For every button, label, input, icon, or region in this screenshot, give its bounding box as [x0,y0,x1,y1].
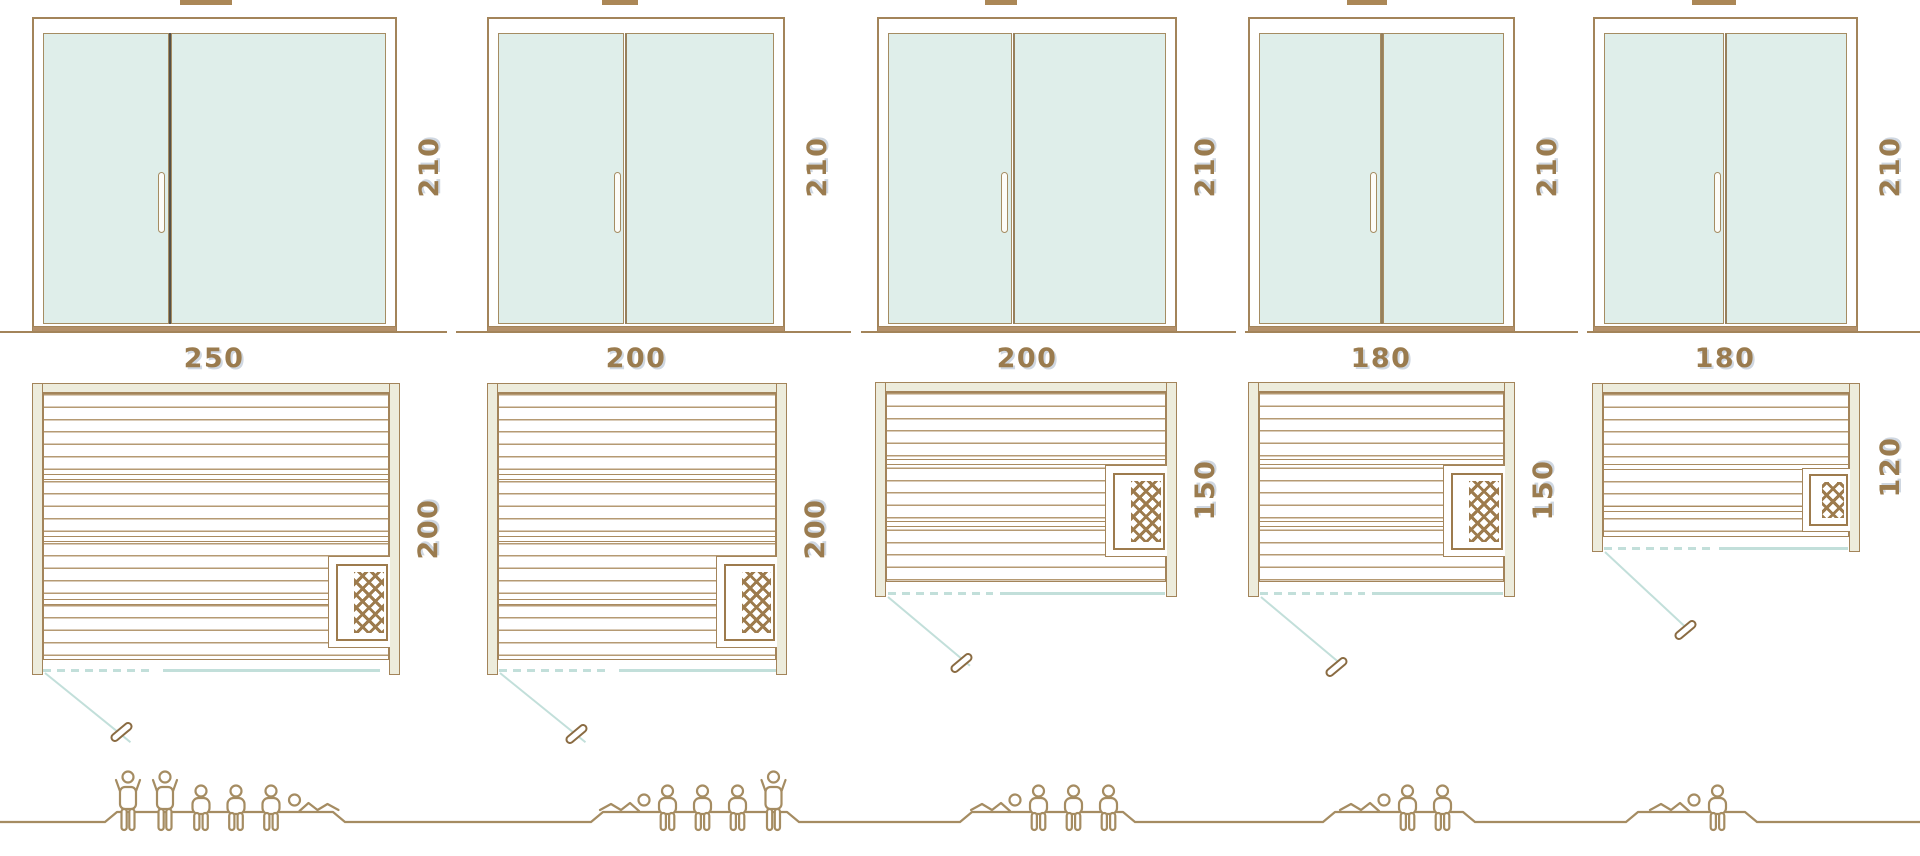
plan-right-post [1849,383,1860,552]
roof-vent-bar [180,0,232,5]
plan-top-wall [32,383,400,393]
door-elevation [32,17,397,332]
glass-panel-left [1259,33,1381,324]
plan-right-post [1504,382,1515,597]
capacity-group [1650,786,1726,831]
plan-left-post [1592,383,1603,552]
plan-interior-planks [1603,393,1849,537]
width-dimension-label: 180 [1321,344,1441,374]
ground-profile-line [0,812,1920,822]
door-open-dashed-line [43,669,155,672]
door-swing-line [1260,596,1343,666]
plan-top-wall [1592,383,1860,393]
plan-right-post [776,383,787,675]
bench-edge-line [44,536,388,542]
heater-box [1451,473,1503,550]
plan-top-wall [1248,382,1515,392]
heater-clear-zone [328,556,390,648]
front-glass-wall-line [1000,592,1165,595]
sauna-dimensions-diagram: 210 250 200 210 200 [0,0,1920,856]
door-open-dashed-line [1604,547,1712,550]
heater-clear-zone [1443,465,1505,557]
front-glass-wall-line [1372,592,1503,595]
roof-vent-bar [985,0,1017,5]
plan-interior-planks [886,392,1166,582]
door-handle [158,172,165,233]
depth-dimension-label: 120 [1876,407,1906,527]
plan-top-wall [487,383,787,393]
roof-vent-bar [1692,0,1736,5]
floor-plan [32,383,400,675]
door-swing-line [1604,551,1691,632]
width-dimension-label: 200 [576,344,696,374]
door-elevation [487,17,785,332]
door-handle [1001,172,1008,233]
floor-plan [1592,383,1860,552]
height-dimension-label: 210 [1876,107,1906,227]
door-divider [169,33,171,324]
floor-plan [875,382,1177,597]
glass-panel-left [1604,33,1724,324]
plan-interior-planks [1259,392,1504,582]
capacity-group [116,772,339,831]
capacity-group [600,772,786,831]
plan-right-post [1166,382,1177,597]
door-open-dashed-line [1260,592,1365,595]
door-handle [614,172,621,233]
plan-left-post [875,382,886,597]
heater-mesh [1822,482,1844,518]
door-elevation [1248,17,1515,332]
capacity-strip [0,750,1920,856]
height-dimension-label: 210 [1533,107,1563,227]
ground-line [1245,331,1578,333]
depth-dimension-label: 150 [1191,430,1221,550]
plan-interior-planks [498,393,776,660]
heater-mesh [354,572,384,633]
floor-plan [1248,382,1515,597]
heater-box [1809,474,1848,526]
depth-dimension-label: 200 [414,469,444,589]
door-handle [1370,172,1377,233]
height-dimension-label: 210 [803,107,833,227]
depth-dimension-label: 150 [1529,430,1559,550]
plan-door-handle [1673,618,1699,642]
glass-panel-left [498,33,624,324]
plan-top-wall [875,382,1177,392]
ground-line [1587,331,1920,333]
door-divider [1013,33,1015,324]
door-open-dashed-line [499,669,611,672]
capacity-group [1340,786,1451,831]
door-divider [1725,33,1727,324]
glass-panel-right [626,33,774,324]
plan-interior-planks [43,393,389,660]
plan-left-post [487,383,498,675]
door-divider [625,33,627,324]
door-open-dashed-line [888,592,993,595]
heater-clear-zone [716,556,777,648]
capacity-group [971,786,1117,831]
heater-mesh [742,572,771,633]
heater-box [724,564,775,641]
plan-right-post [389,383,400,675]
heater-clear-zone [1802,468,1850,532]
plan-left-post [1248,382,1259,597]
front-glass-wall-line [163,669,380,672]
front-glass-wall-line [619,669,776,672]
bench-edge-line [499,474,775,480]
ground-line [0,331,447,333]
ground-line [456,331,851,333]
bench-edge-line [499,536,775,542]
front-glass-wall-line [1719,547,1848,550]
width-dimension-label: 180 [1665,344,1785,374]
glass-panel-right [1383,33,1504,324]
glass-panel-left [43,33,169,324]
glass-panel-right [171,33,386,324]
height-dimension-label: 210 [1191,107,1221,227]
glass-panel-right [1726,33,1847,324]
door-divider [1381,33,1383,324]
door-elevation [877,17,1177,332]
heater-mesh [1131,481,1161,542]
ground-line [861,331,1236,333]
roof-vent-bar [602,0,638,5]
heater-clear-zone [1105,465,1167,557]
width-dimension-label: 200 [967,344,1087,374]
heater-mesh [1469,481,1499,542]
glass-panel-right [1014,33,1166,324]
floor-plan [487,383,787,675]
plan-left-post [32,383,43,675]
door-swing-line [887,596,970,666]
height-dimension-label: 210 [415,107,445,227]
plan-door-handle [949,651,975,675]
bench-edge-line [44,474,388,480]
roof-vent-bar [1347,0,1387,5]
heater-box [336,564,388,641]
depth-dimension-label: 200 [801,469,831,589]
glass-panel-left [888,33,1012,324]
door-handle [1714,172,1721,233]
door-elevation [1593,17,1858,332]
width-dimension-label: 250 [154,344,274,374]
heater-box [1113,473,1165,550]
